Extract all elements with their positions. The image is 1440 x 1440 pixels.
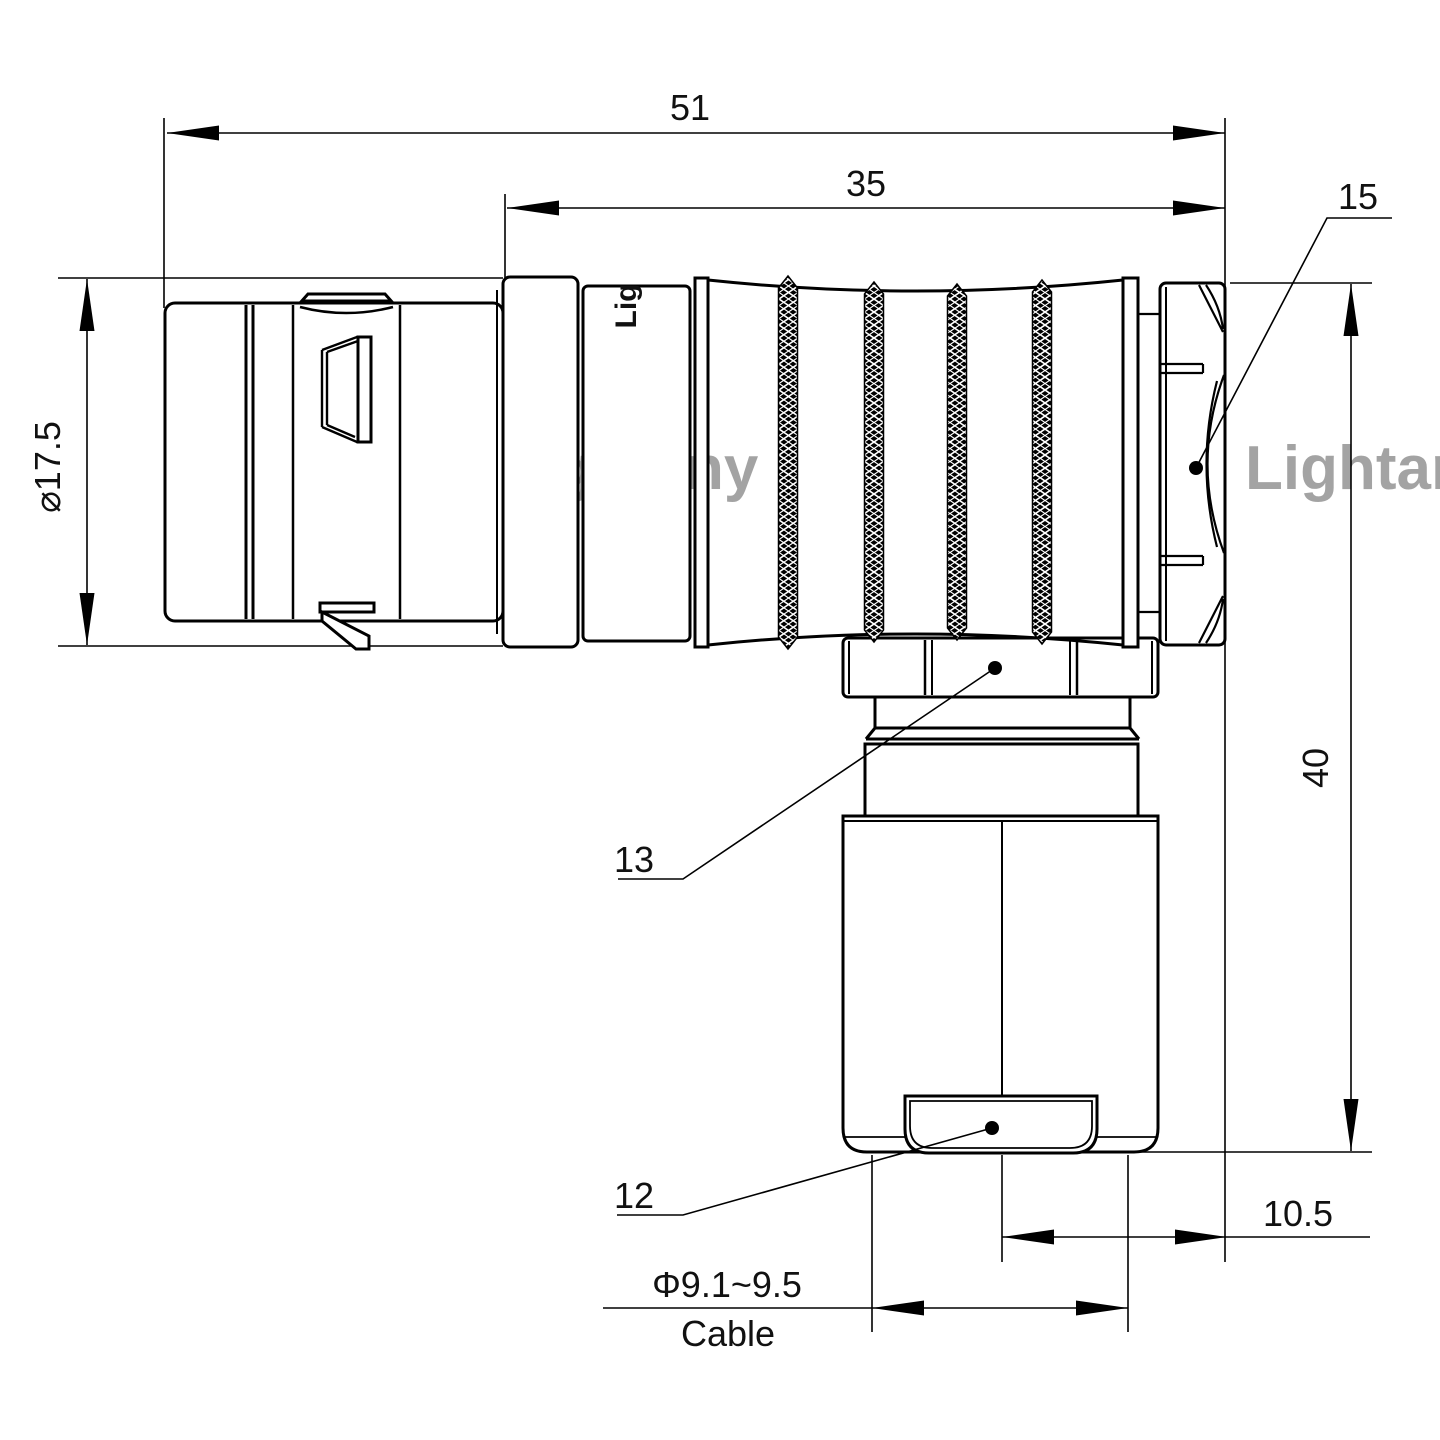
dim-rear-length-label: 35 [846, 163, 886, 204]
brand-engraving-text: Lig [610, 284, 643, 329]
knurl-strip-1 [779, 276, 798, 649]
connector-drawing: Lightany Lightany [0, 0, 1440, 1440]
technical-drawing-page: Lightany Lightany [0, 0, 1440, 1440]
dim-height-label: 40 [1295, 748, 1336, 788]
cable-word-label: Cable [681, 1313, 775, 1354]
knurl-strip-3 [948, 284, 967, 640]
elbow-cylinder [865, 744, 1138, 816]
sleeve-right-cap [1123, 278, 1138, 647]
knurl-strip-2 [865, 282, 884, 642]
item-13-label: 13 [614, 839, 654, 880]
item-12-label: 12 [614, 1175, 654, 1216]
leader-dot-15 [1189, 461, 1203, 475]
dim-front-diameter-label: ⌀17.5 [27, 421, 68, 513]
watermark-text-right: Lightany [1245, 434, 1440, 503]
dim-overall-length-label: 51 [670, 87, 710, 128]
latch-bar [320, 603, 374, 612]
leader-dot-12 [985, 1121, 999, 1135]
dim-cable-diameter-label: Φ9.1~9.5 [652, 1264, 802, 1305]
knurl-strip-4 [1033, 280, 1052, 644]
brand-band [583, 286, 690, 641]
coupling-ring [503, 277, 578, 647]
sleeve-left-cap [695, 278, 708, 647]
item-15-label: 15 [1338, 176, 1378, 217]
elbow-assembly [843, 638, 1158, 1153]
dim-rear-offset-label: 10.5 [1263, 1193, 1333, 1234]
background [0, 0, 1440, 1440]
leader-dot-13 [988, 661, 1002, 675]
